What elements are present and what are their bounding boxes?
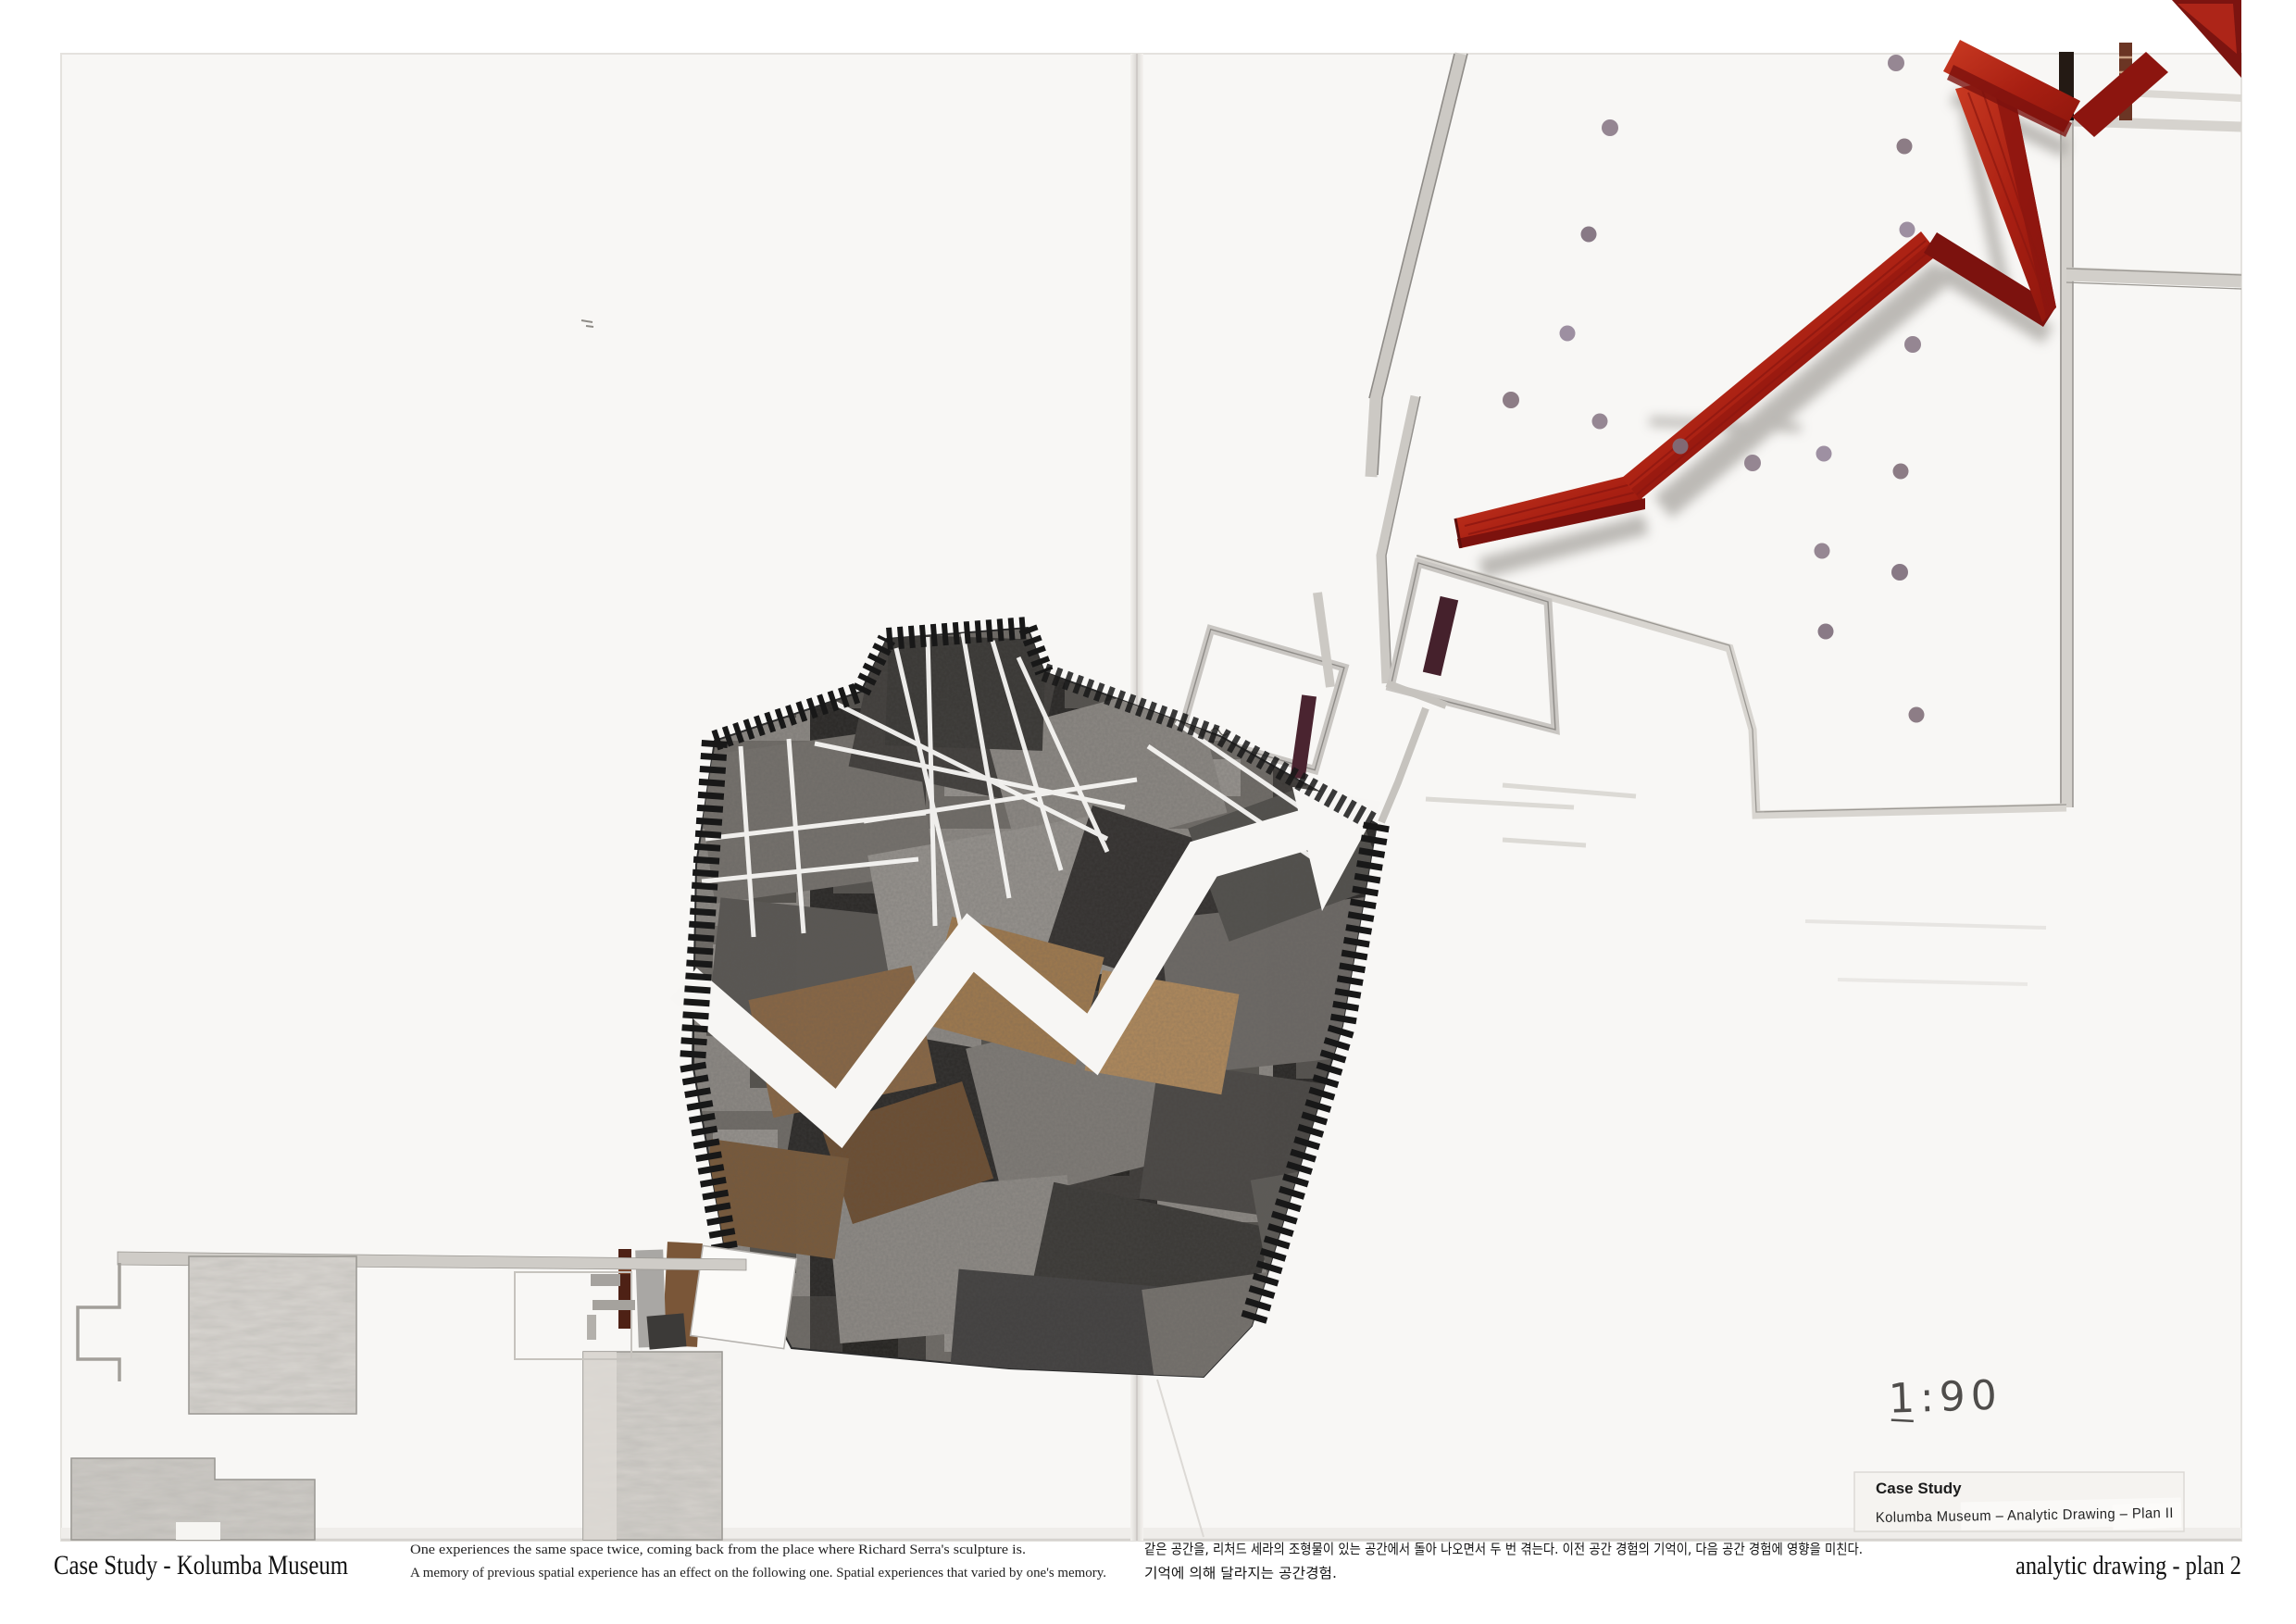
scale-note-text: 1:90 — [1888, 1371, 2003, 1422]
pencil-wall-vertical — [2061, 95, 2073, 807]
caption-statement-kr: 같은 공간을, 리처드 세라의 조형물이 있는 공간에서 돌아 나오면서 두 번… — [1144, 1541, 1863, 1581]
statement-kr-line1: 같은 공간을, 리처드 세라의 조형물이 있는 공간에서 돌아 나오면서 두 번… — [1144, 1541, 1863, 1557]
caption-row: Case Study - Kolumba Museum One experien… — [54, 1541, 2241, 1581]
scanned-board: 1:90 Case Study Kolumba Museum – Analyti… — [0, 0, 2296, 1624]
label-box-line1: Case Study — [1876, 1480, 1962, 1497]
caption-statement-en: One experiences the same space twice, co… — [410, 1543, 1106, 1580]
label-box: Case Study Kolumba Museum – Analytic Dra… — [1854, 1472, 2184, 1531]
scale-note-handwritten: 1:90 — [1888, 1371, 2003, 1422]
white-notch — [176, 1522, 220, 1540]
caption-title-right: analytic drawing - plan 2 — [2015, 1552, 2241, 1580]
statement-en-line2: A memory of previous spatial experience … — [410, 1566, 1106, 1580]
statement-en-line1: One experiences the same space twice, co… — [410, 1543, 1026, 1557]
board-scan: 1:90 Case Study Kolumba Museum – Analyti… — [0, 0, 2296, 1624]
caption-title-left: Case Study - Kolumba Museum — [54, 1550, 348, 1580]
statement-kr-line2: 기억에 의해 달라지는 공간경험. — [1144, 1565, 1337, 1581]
